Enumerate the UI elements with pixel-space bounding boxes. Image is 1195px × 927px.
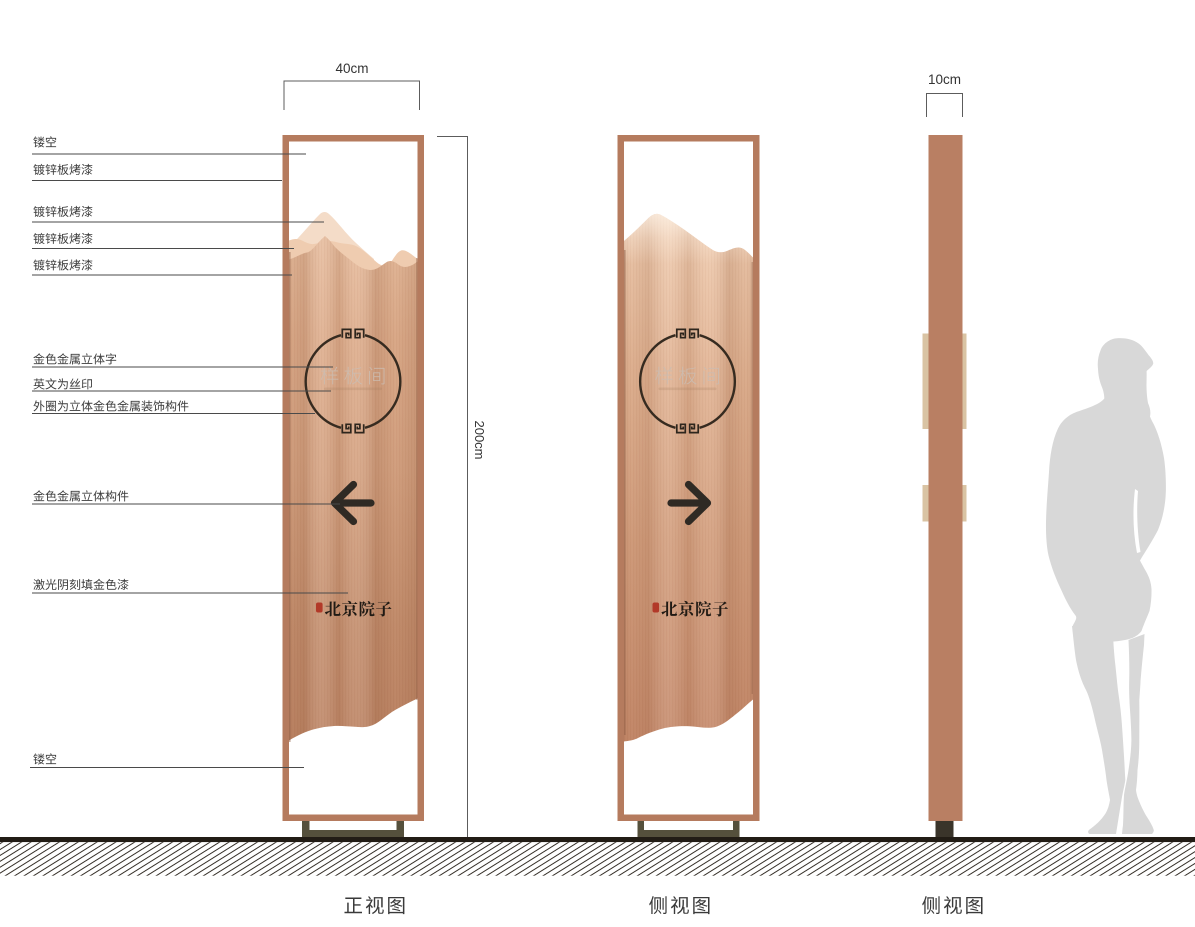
svg-text:40cm: 40cm (335, 61, 368, 76)
svg-text:10cm: 10cm (928, 72, 961, 87)
svg-text:200cm: 200cm (472, 420, 487, 459)
